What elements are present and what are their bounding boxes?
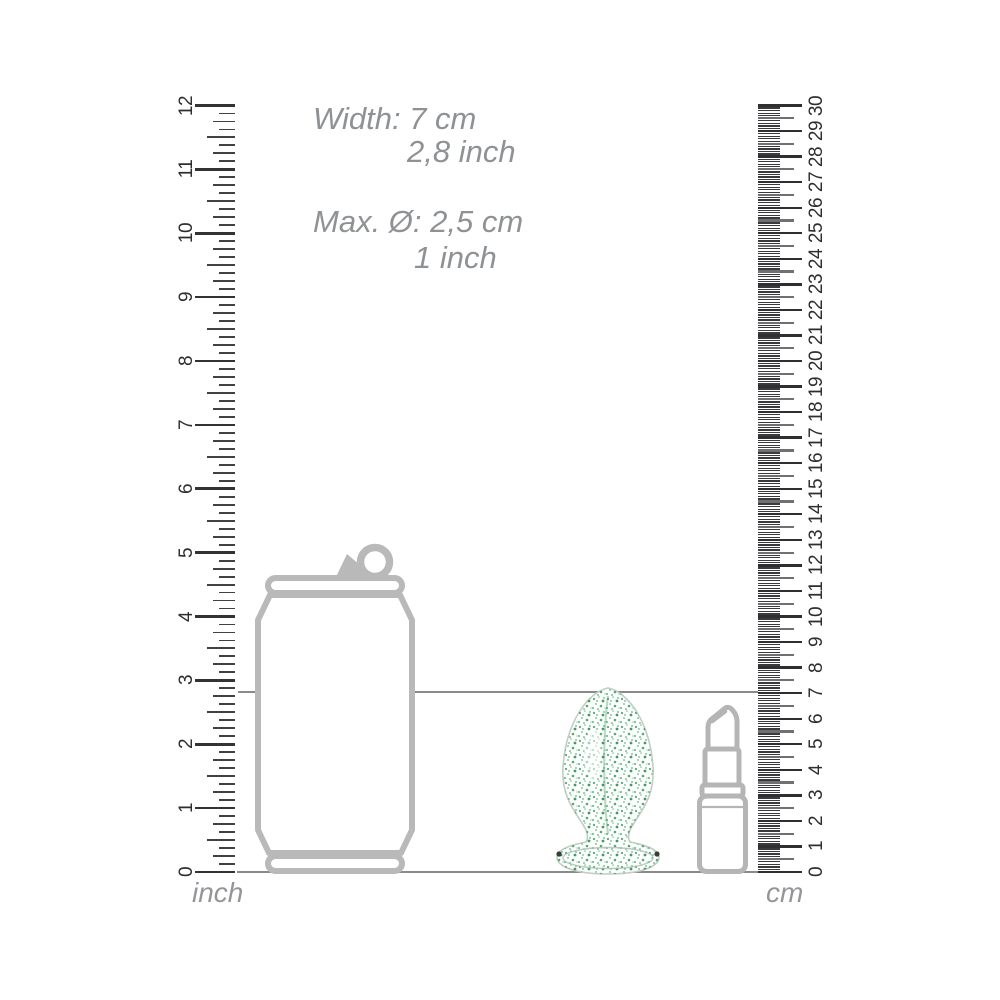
product-size-chart: 0123456789101112 01234567891011121314151… xyxy=(0,0,1000,1000)
cm-ruler-label: cm xyxy=(766,879,803,907)
diameter-inch-text: 1 inch xyxy=(414,242,497,273)
diameter-cm-text: Max. Ø: 2,5 cm xyxy=(313,206,523,237)
width-cm-text: Width: 7 cm xyxy=(313,103,476,134)
dimension-text-block: Width: 7 cm 2,8 inch Max. Ø: 2,5 cm 1 in… xyxy=(0,0,1000,1000)
inch-ruler-label: inch xyxy=(192,879,243,907)
width-inch-text: 2,8 inch xyxy=(407,136,516,167)
